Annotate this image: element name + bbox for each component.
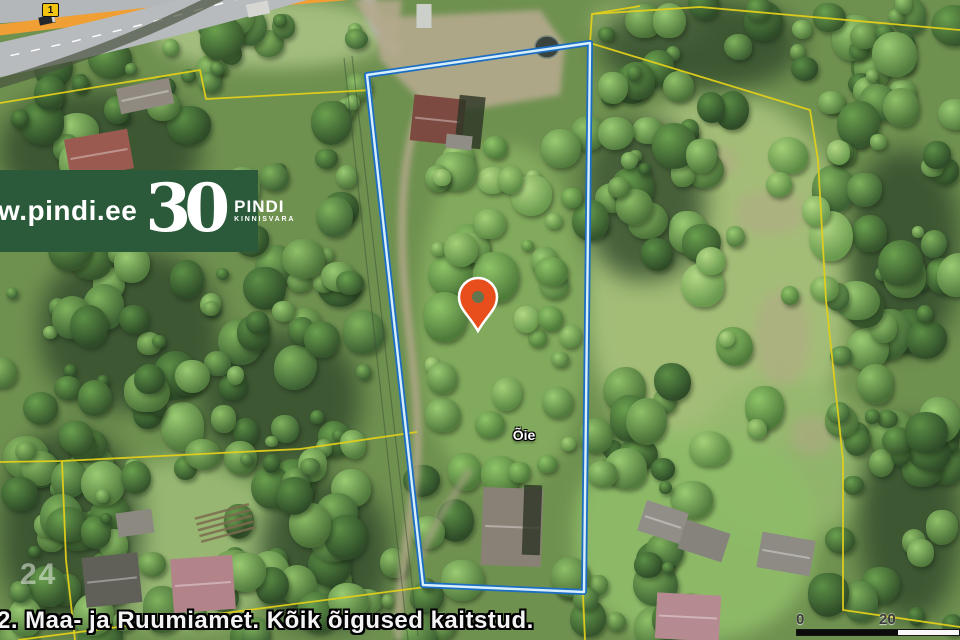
tree-canopy [514, 306, 539, 332]
tree-canopy [828, 139, 856, 166]
tree-canopy [604, 448, 647, 489]
tree-canopy [666, 46, 680, 61]
tree-canopy [340, 430, 366, 459]
tree-canopy [627, 65, 642, 83]
building-roof [756, 532, 815, 577]
tree-canopy [64, 364, 77, 378]
tree-canopy [891, 444, 911, 466]
tree-canopy [425, 165, 450, 193]
tree-canopy [570, 600, 606, 637]
building-roof [246, 0, 270, 17]
tree-canopy [23, 392, 59, 425]
building-roof [116, 509, 155, 538]
tree-canopy [641, 238, 673, 271]
tree-canopy [70, 305, 109, 348]
plot-number-label: 24 [20, 558, 57, 592]
scale-segment-light [898, 630, 959, 635]
terrain-patch [590, 0, 710, 50]
tree-canopy [387, 556, 407, 578]
tree-canopy [572, 200, 609, 240]
tree-canopy [781, 286, 799, 305]
tree-canopy [611, 167, 654, 209]
tree-canopy [542, 387, 573, 418]
tree-canopy [271, 415, 299, 444]
tree-canopy [311, 101, 352, 145]
tree-canopy [212, 550, 256, 591]
terrain-patch [155, 0, 385, 68]
tree-canopy [286, 570, 303, 588]
tree-canopy [272, 163, 286, 176]
tree-canopy [837, 101, 880, 148]
tree-canopy [483, 136, 507, 159]
tree-canopy [825, 527, 854, 554]
tree-canopy [603, 452, 616, 464]
tree-canopy [573, 587, 598, 611]
tree-canopy [869, 313, 897, 343]
tree-canopy [872, 32, 917, 77]
tree-canopy [545, 213, 562, 229]
tree-canopy [629, 150, 641, 163]
tree-canopy [870, 134, 887, 150]
tree-canopy [83, 284, 124, 329]
tree-canopy [0, 46, 20, 69]
tree-canopy [276, 477, 313, 516]
tree-canopy [15, 441, 36, 462]
tree-canopy [403, 465, 440, 498]
tree-canopy [869, 449, 895, 477]
tree-canopy [6, 287, 18, 299]
tree-canopy [424, 292, 467, 342]
tree-canopy [889, 80, 916, 104]
tree-canopy [669, 211, 708, 254]
scale-segment-dark [797, 630, 898, 635]
cadastral-boundary-lines [0, 6, 960, 640]
tree-canopy [41, 89, 63, 111]
tree-canopy [628, 202, 669, 239]
tree-canopy [663, 71, 694, 102]
tree-canopy [790, 44, 805, 60]
tree-canopy [321, 262, 355, 292]
tree-canopy [812, 165, 855, 213]
buildings-group [64, 0, 816, 640]
tree-canopy [99, 529, 128, 561]
tree-canopy [225, 547, 245, 567]
tree-canopy [846, 328, 889, 370]
tree-canopy [852, 215, 888, 252]
power-line [344, 56, 418, 640]
tree-canopy [243, 267, 286, 310]
tree-canopy [579, 418, 613, 453]
tree-canopy [40, 494, 83, 540]
tree-canopy [106, 578, 128, 603]
map-photo-layer [0, 0, 960, 640]
tree-canopy [345, 73, 372, 102]
building-roof [116, 78, 174, 115]
tree-canopy [225, 553, 266, 592]
terrain-patch [585, 120, 705, 280]
tree-canopy [850, 23, 878, 49]
tree-canopy [69, 446, 115, 486]
tree-canopy [308, 545, 350, 587]
tree-canopy [0, 357, 17, 388]
terrain-patch [40, 250, 220, 410]
tree-canopy [210, 61, 224, 75]
tree-canopy [324, 192, 359, 226]
tree-canopy [54, 376, 82, 400]
tree-canopy [598, 117, 634, 150]
tree-canopy [626, 398, 668, 445]
tree-canopy [827, 140, 851, 165]
banner-brand-name: PINDI [234, 198, 295, 216]
tree-canopy [716, 327, 753, 366]
tree-canopy [20, 101, 64, 145]
tree-canopy [225, 514, 246, 534]
tree-canopy [162, 39, 179, 56]
scale-bar-track [796, 629, 960, 636]
tree-canopy [907, 321, 947, 359]
tree-canopy [481, 456, 521, 495]
tree-canopy [437, 499, 475, 542]
tree-canopy [830, 346, 852, 366]
tree-canopy [662, 562, 674, 573]
tree-canopy [37, 521, 66, 552]
tree-canopy [336, 165, 357, 188]
tree-canopy [616, 189, 654, 225]
pond [535, 36, 559, 58]
tree-canopy [272, 14, 294, 39]
tree-canopy [541, 129, 581, 168]
tree-canopy [897, 54, 915, 74]
gravel-road [352, 0, 565, 640]
tree-canopy [865, 309, 911, 360]
tree-canopy [883, 88, 919, 127]
tree-canopy [638, 163, 651, 175]
tree-canopy [175, 360, 210, 393]
tree-canopy [93, 267, 125, 301]
tree-canopy [208, 12, 249, 47]
tree-canopy [559, 325, 581, 348]
tree-canopy [21, 451, 57, 485]
tree-canopy [768, 137, 808, 174]
tree-canopy [888, 9, 904, 24]
tree-canopy [907, 539, 934, 567]
banner-anniversary-30: 30 [145, 175, 223, 241]
tree-canopy [153, 351, 198, 400]
tree-canopy [16, 49, 29, 62]
tree-canopy [937, 253, 960, 298]
tree-canopy [813, 3, 845, 32]
tree-canopy [851, 49, 888, 85]
tree-canopy [137, 332, 162, 355]
tree-canopy [216, 268, 229, 280]
tree-canopy [859, 84, 898, 122]
tree-canopy [233, 7, 267, 45]
watermark-banner: w.pindi.ee 30 PINDI KINNISVARA [0, 170, 258, 252]
tree-canopy [931, 5, 960, 46]
tree-canopy [654, 363, 691, 401]
tree-canopy [554, 560, 588, 599]
tree-canopy [836, 281, 880, 320]
tree-canopy [49, 298, 66, 316]
tree-canopy [905, 412, 949, 454]
tree-canopy [196, 55, 223, 84]
tree-canopy [316, 439, 332, 457]
tree-canopy [101, 571, 114, 585]
banner-url-text: w.pindi.ee [0, 195, 137, 227]
tree-canopy [104, 96, 130, 124]
tree-canopy [671, 160, 694, 187]
tree-canopy [646, 533, 684, 568]
tree-canopy [198, 72, 222, 93]
terrain-patch [860, 420, 960, 620]
tree-canopy [444, 283, 465, 304]
tree-canopy [926, 258, 958, 294]
tree-canopy [420, 578, 434, 590]
tree-canopy [745, 386, 784, 431]
tree-canopy [747, 419, 767, 439]
tree-canopy [259, 164, 289, 191]
tree-canopy [571, 116, 606, 150]
tree-canopy [538, 306, 562, 331]
tree-canopy [300, 458, 320, 475]
tree-canopy [927, 445, 960, 485]
tree-canopy [119, 305, 149, 334]
tree-canopy [535, 257, 568, 286]
tree-canopy [97, 375, 109, 387]
tree-canopy [926, 510, 958, 544]
tree-canopy [318, 268, 362, 306]
tree-canopy [54, 113, 100, 153]
tree-canopy [511, 175, 552, 216]
tree-canopy [853, 77, 880, 103]
tree-canopy [448, 453, 482, 491]
tree-canopy [848, 73, 872, 95]
tree-canopy [485, 469, 516, 498]
tree-canopy [908, 435, 951, 472]
tree-canopy [802, 196, 830, 226]
tree-canopy [325, 528, 350, 551]
tree-canopy [167, 106, 211, 144]
tree-canopy [561, 188, 581, 208]
tree-canopy [134, 364, 165, 394]
tree-canopy [335, 572, 351, 589]
tree-canopy [125, 459, 142, 475]
tree-canopy [680, 119, 699, 139]
tree-canopy [233, 418, 258, 446]
tree-canopy [854, 48, 891, 90]
tree-canopy [152, 335, 166, 347]
tree-canopy [715, 91, 749, 130]
tree-canopy [250, 551, 290, 592]
tree-canopy [224, 504, 255, 539]
tree-canopy [331, 469, 370, 508]
tree-canopy [883, 252, 926, 298]
tree-canopy [273, 14, 287, 28]
tree-canopy [59, 421, 92, 454]
tree-canopy [551, 352, 568, 367]
tree-canopy [263, 454, 279, 473]
tree-canopy [345, 29, 368, 49]
tree-canopy [827, 402, 849, 423]
tree-canopy [882, 427, 912, 454]
tree-canopy [641, 50, 674, 85]
tree-canopy [845, 288, 883, 328]
tree-canopy [865, 409, 880, 424]
tree-canopy [528, 329, 547, 347]
tree-canopy [849, 42, 870, 61]
tree-canopy [537, 455, 558, 473]
terrain-patch [600, 0, 800, 90]
tree-canopy [923, 141, 950, 169]
tree-canopy [282, 239, 325, 278]
tree-canopy [498, 166, 523, 195]
tree-canopy [843, 422, 869, 447]
tree-canopy [289, 503, 331, 548]
tree-canopy [278, 565, 316, 604]
tree-canopy [810, 276, 840, 302]
tree-canopy [477, 167, 508, 194]
tree-canopy [686, 139, 717, 173]
tree-canopy [850, 127, 869, 148]
tree-canopy [50, 482, 65, 497]
tree-canopy [878, 240, 923, 286]
tree-canopy [698, 139, 716, 155]
tree-canopy [424, 293, 465, 328]
tree-canopy [171, 360, 204, 396]
tree-canopy [271, 459, 316, 504]
tree-canopy [744, 1, 783, 42]
parcel-name-label: Õie [500, 427, 548, 443]
tree-canopy [866, 69, 878, 83]
scale-label-20: 20 [879, 611, 896, 628]
tree-canopy [825, 283, 849, 311]
tree-canopy [90, 494, 130, 536]
tree-canopy [174, 456, 197, 480]
tree-canopy [68, 433, 97, 459]
tree-canopy [938, 99, 960, 130]
building-roof [82, 552, 143, 608]
tree-canopy [254, 30, 284, 57]
tree-canopy [206, 45, 219, 57]
tree-canopy [682, 224, 721, 263]
tree-canopy [792, 20, 813, 40]
scale-bar: 0 20 [796, 611, 960, 636]
tree-canopy [653, 389, 677, 414]
tree-canopy [411, 516, 446, 549]
tree-canopy [332, 429, 345, 441]
building-roof [637, 500, 689, 544]
tree-canopy [895, 32, 914, 53]
tree-canopy [588, 575, 608, 596]
tree-canopy [256, 567, 289, 604]
tree-canopy [526, 170, 540, 184]
tree-canopy [652, 596, 695, 640]
terrain-patch [0, 430, 140, 630]
tree-canopy [619, 438, 658, 471]
tree-canopy [185, 439, 222, 470]
tree-canopy [316, 493, 357, 532]
terrain-patch [790, 415, 835, 455]
tree-canopy [425, 398, 459, 431]
tree-canopy [200, 293, 221, 316]
tree-canopy [476, 262, 488, 273]
tree-canopy [313, 275, 334, 293]
tree-canopy [51, 460, 87, 498]
tree-canopy [791, 57, 818, 81]
tree-canopy [204, 351, 232, 375]
tree-canopy [940, 433, 959, 454]
tree-canopy [81, 461, 125, 506]
terrain-patch [698, 148, 738, 176]
tree-canopy [861, 567, 900, 604]
tree-canopy [601, 89, 618, 106]
tree-canopy [633, 563, 678, 606]
garden-rows [195, 504, 255, 542]
tree-canopy [380, 548, 406, 577]
tree-canopy [431, 242, 444, 256]
tree-canopy [632, 117, 663, 144]
tree-canopy [921, 230, 947, 258]
tree-canopy [11, 109, 30, 128]
tree-canopy [875, 267, 890, 281]
tree-canopy [200, 17, 243, 60]
tree-canopy [154, 77, 176, 97]
tree-canopy [551, 557, 590, 597]
tree-canopy [198, 18, 219, 38]
tree-canopy [451, 224, 489, 267]
building-roof [655, 592, 721, 640]
tree-canopy [125, 63, 137, 74]
tree-canopy [218, 319, 263, 365]
building-roof [481, 487, 544, 567]
tree-canopy [227, 366, 244, 384]
tree-canopy [913, 454, 936, 475]
tree-canopy [621, 152, 638, 169]
tree-canopy [598, 27, 614, 42]
tree-canopy [587, 461, 616, 487]
tree-canopy [356, 364, 372, 379]
tree-canopy [214, 408, 228, 422]
tree-canopy [19, 450, 60, 488]
tree-canopy [474, 209, 506, 239]
tree-canopy [877, 410, 899, 429]
tree-canopy [88, 41, 132, 79]
tree-canopy [434, 152, 477, 190]
building-roof [445, 134, 472, 151]
tree-canopy [746, 0, 770, 22]
tree-canopy [219, 373, 247, 400]
tree-canopy [492, 377, 522, 410]
tree-canopy [382, 594, 395, 607]
tree-canopy [53, 134, 80, 162]
tree-canopy [676, 593, 702, 616]
tree-canopy [847, 173, 882, 207]
tree-canopy [696, 247, 725, 275]
route-number-badge: 1 [42, 3, 59, 17]
terrain-patch [575, 430, 815, 640]
scale-label-0: 0 [796, 611, 804, 628]
tree-canopy [902, 451, 943, 488]
tree-canopy [895, 0, 913, 14]
tree-canopy [287, 271, 311, 293]
tree-canopy [685, 151, 724, 188]
tree-canopy [88, 574, 122, 604]
tree-canopy [653, 3, 686, 38]
tree-canopy [830, 214, 844, 227]
tree-canopy [606, 612, 626, 631]
tree-canopy [213, 62, 228, 75]
tree-canopy [315, 149, 337, 169]
